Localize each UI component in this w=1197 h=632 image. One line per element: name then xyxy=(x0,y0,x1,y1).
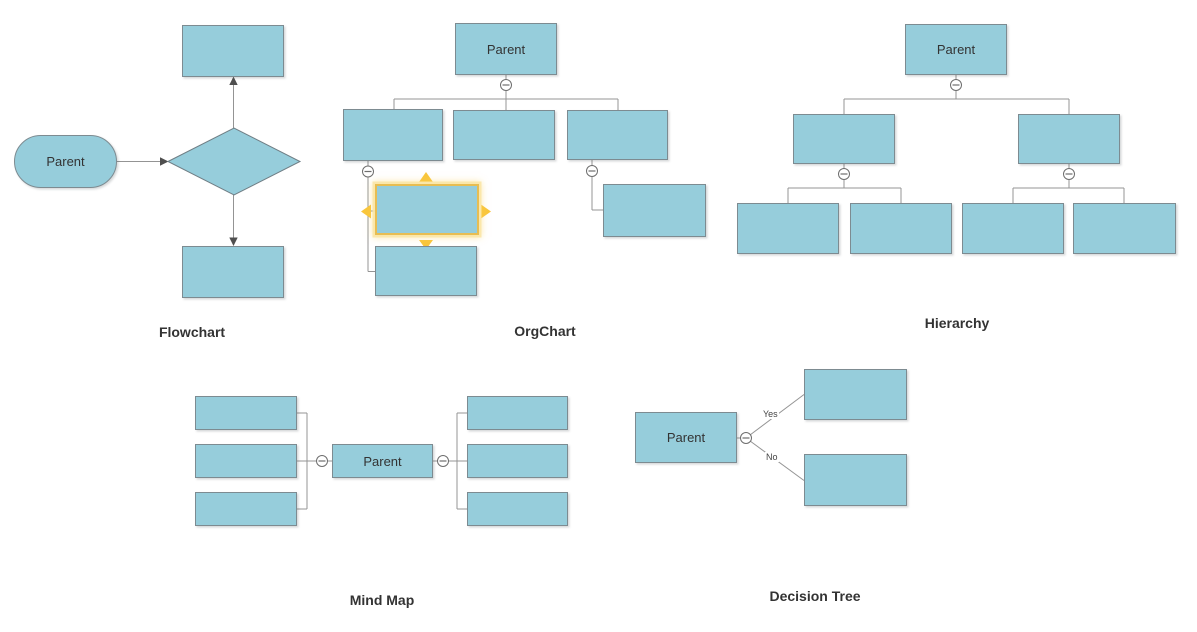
collapse-icon[interactable] xyxy=(363,166,374,177)
orgchart-connectors xyxy=(361,75,618,272)
orgchart-selected-node[interactable] xyxy=(375,184,479,235)
hierarchy-child-node-right[interactable] xyxy=(1018,114,1120,164)
mindmap-left-node-2[interactable] xyxy=(195,444,297,478)
arrowhead-up-icon xyxy=(229,77,237,86)
selector-arrow-up-icon[interactable] xyxy=(419,172,433,182)
selector-arrow-left-icon[interactable] xyxy=(361,205,371,219)
orgchart-grandchild-node-2[interactable] xyxy=(603,184,706,237)
orgchart-child-node-1[interactable] xyxy=(343,109,443,161)
connector-layer xyxy=(0,0,1197,632)
decision-tree-yes-node[interactable] xyxy=(804,369,907,420)
node-label: Parent xyxy=(363,454,401,469)
flowchart-process-node-bottom[interactable] xyxy=(182,246,284,298)
flowchart-caption: Flowchart xyxy=(159,324,225,340)
collapse-icon[interactable] xyxy=(951,80,962,91)
mindmap-left-node-3[interactable] xyxy=(195,492,297,526)
hierarchy-child-node-left[interactable] xyxy=(793,114,895,164)
hierarchy-leaf-node-2[interactable] xyxy=(850,203,952,254)
collapse-icon[interactable] xyxy=(1064,169,1075,180)
collapse-icon[interactable] xyxy=(501,80,512,91)
yes-branch-label: Yes xyxy=(762,409,779,419)
diagram-canvas: Parent Flowchart Parent OrgChart Parent … xyxy=(0,0,1197,632)
flowchart-process-node-top[interactable] xyxy=(182,25,284,77)
hierarchy-leaf-node-1[interactable] xyxy=(737,203,839,254)
orgchart-child-node-2[interactable] xyxy=(453,110,555,160)
decision-tree-connectors xyxy=(737,395,804,481)
orgchart-root-node[interactable]: Parent xyxy=(455,23,557,75)
node-label: Parent xyxy=(46,154,84,169)
mindmap-right-node-2[interactable] xyxy=(467,444,568,478)
decision-tree-root-node[interactable]: Parent xyxy=(635,412,737,463)
node-label: Parent xyxy=(487,42,525,57)
hierarchy-leaf-node-4[interactable] xyxy=(1073,203,1176,254)
flowchart-start-node[interactable]: Parent xyxy=(14,135,117,188)
orgchart-child-node-3[interactable] xyxy=(567,110,668,160)
decision-tree-caption: Decision Tree xyxy=(769,588,860,604)
collapse-icon[interactable] xyxy=(741,433,752,444)
decision-tree-no-node[interactable] xyxy=(804,454,907,506)
node-label: Parent xyxy=(937,42,975,57)
collapse-icon[interactable] xyxy=(839,169,850,180)
selector-arrow-right-icon[interactable] xyxy=(481,205,491,219)
mindmap-caption: Mind Map xyxy=(350,592,415,608)
hierarchy-leaf-node-3[interactable] xyxy=(962,203,1064,254)
mindmap-left-node-1[interactable] xyxy=(195,396,297,430)
collapse-icon[interactable] xyxy=(587,166,598,177)
hierarchy-caption: Hierarchy xyxy=(925,315,990,331)
mindmap-root-node[interactable]: Parent xyxy=(332,444,433,478)
arrowhead-down-icon xyxy=(229,238,237,247)
no-branch-label: No xyxy=(765,452,779,462)
orgchart-grandchild-node-1[interactable] xyxy=(375,246,477,296)
mindmap-right-node-1[interactable] xyxy=(467,396,568,430)
flowchart-decision-node[interactable] xyxy=(168,128,300,195)
hierarchy-root-node[interactable]: Parent xyxy=(905,24,1007,75)
collapse-icon[interactable] xyxy=(317,456,328,467)
collapse-icon[interactable] xyxy=(438,456,449,467)
mindmap-right-node-3[interactable] xyxy=(467,492,568,526)
node-label: Parent xyxy=(667,430,705,445)
orgchart-caption: OrgChart xyxy=(514,323,575,339)
